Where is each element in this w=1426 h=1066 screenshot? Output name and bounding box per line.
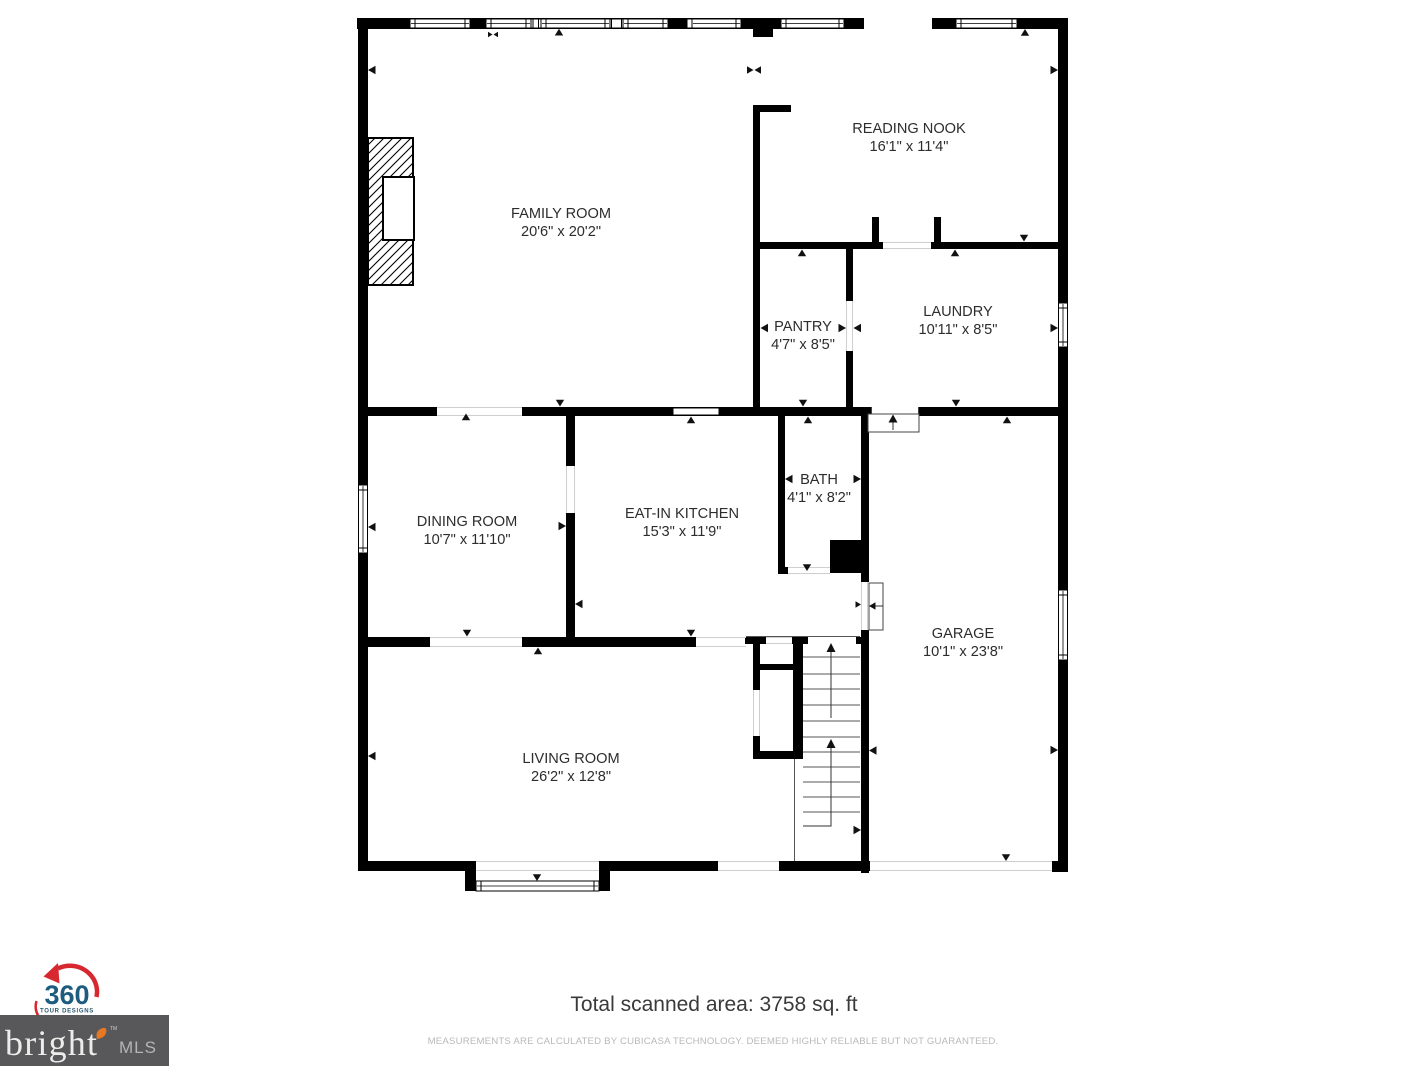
svg-text:4'1" x 8'2": 4'1" x 8'2" [787,490,851,506]
svg-text:EAT-IN KITCHEN: EAT-IN KITCHEN [625,506,739,522]
svg-text:20'6" x 20'2": 20'6" x 20'2" [521,224,601,240]
svg-text:10'1" x 23'8": 10'1" x 23'8" [923,644,1003,660]
svg-text:FAMILY ROOM: FAMILY ROOM [511,206,611,222]
svg-text:360: 360 [44,980,89,1010]
svg-text:GARAGE: GARAGE [932,626,995,642]
svg-text:10'11" x 8'5": 10'11" x 8'5" [919,322,998,338]
svg-text:MEASUREMENTS ARE CALCULATED BY: MEASUREMENTS ARE CALCULATED BY CUBICASA … [428,1036,999,1047]
svg-text:MLS: MLS [119,1038,157,1057]
svg-text:16'1" x 11'4": 16'1" x 11'4" [870,139,949,155]
svg-text:PANTRY: PANTRY [774,319,832,335]
svg-text:READING NOOK: READING NOOK [852,121,966,137]
svg-text:15'3" x 11'9": 15'3" x 11'9" [643,524,722,540]
svg-text:DINING ROOM: DINING ROOM [417,514,518,530]
svg-text:LIVING ROOM: LIVING ROOM [522,751,619,767]
svg-text:LAUNDRY: LAUNDRY [923,304,993,320]
svg-text:TM: TM [110,1026,117,1032]
svg-text:bright: bright [5,1023,98,1063]
svg-text:TOUR DESIGNS: TOUR DESIGNS [40,1009,94,1015]
svg-text:Total scanned area: 3758 sq. f: Total scanned area: 3758 sq. ft [570,993,857,1016]
svg-text:4'7" x 8'5": 4'7" x 8'5" [771,337,835,353]
svg-text:BATH: BATH [800,472,838,488]
svg-text:10'7" x 11'10": 10'7" x 11'10" [423,532,510,548]
svg-text:26'2" x 12'8": 26'2" x 12'8" [531,769,611,785]
